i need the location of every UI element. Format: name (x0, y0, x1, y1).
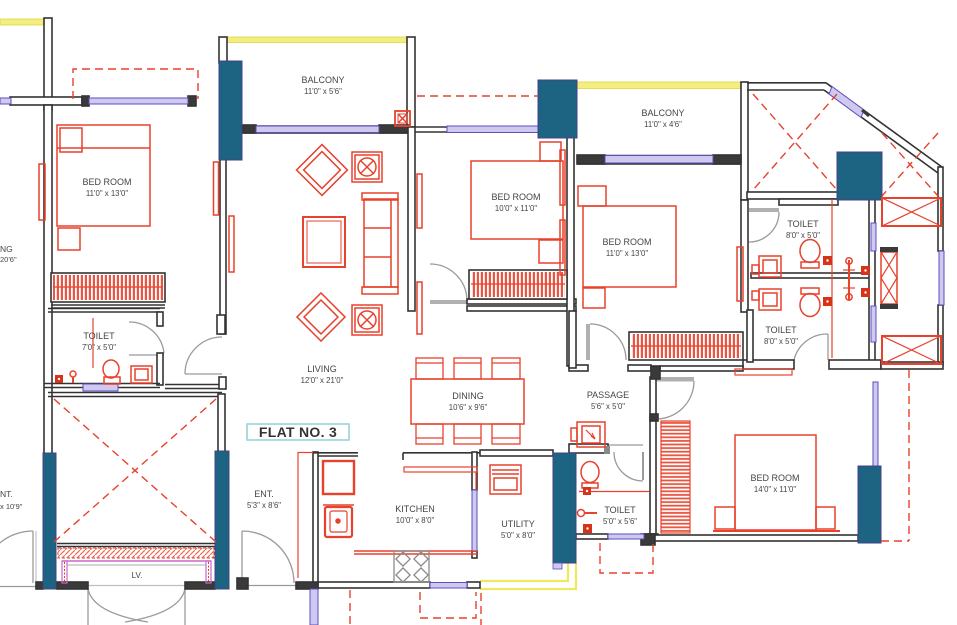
svg-text:BED ROOM: BED ROOM (750, 473, 799, 483)
svg-text:LIVING: LIVING (307, 364, 337, 374)
svg-text:UTILITY: UTILITY (501, 519, 535, 529)
svg-text:NT.: NT. (0, 489, 13, 499)
svg-text:12'0" x 21'0": 12'0" x 21'0" (301, 376, 344, 385)
svg-text:TOILET: TOILET (765, 325, 797, 335)
svg-text:10'0" x 8'0": 10'0" x 8'0" (396, 516, 435, 525)
svg-text:5'3" x 8'6": 5'3" x 8'6" (247, 501, 281, 510)
svg-text:5'6" x 5'0": 5'6" x 5'0" (591, 402, 625, 411)
svg-text:5'0" x 8'0": 5'0" x 8'0" (501, 531, 535, 540)
svg-text:KITCHEN: KITCHEN (395, 504, 435, 514)
svg-text:TOILET: TOILET (787, 219, 819, 229)
svg-text:10'6" x 9'6": 10'6" x 9'6" (449, 403, 488, 412)
svg-text:7'0" x 5'0": 7'0" x 5'0" (82, 343, 116, 352)
svg-text:11'0" x 13'0": 11'0" x 13'0" (86, 189, 128, 198)
svg-text:BED ROOM: BED ROOM (491, 192, 540, 202)
svg-text:NG: NG (0, 244, 13, 254)
svg-text:BALCONY: BALCONY (301, 75, 344, 85)
svg-text:5'0" x 5'6": 5'0" x 5'6" (603, 517, 637, 526)
svg-text:14'0" x 11'0": 14'0" x 11'0" (754, 485, 796, 494)
svg-text:DINING: DINING (452, 391, 484, 401)
svg-text:PASSAGE: PASSAGE (587, 390, 629, 400)
svg-text:ENT.: ENT. (254, 489, 274, 499)
svg-text:x 10'9": x 10'9" (0, 502, 23, 511)
svg-text:20'6": 20'6" (0, 255, 17, 264)
svg-text:10'0" x 11'0": 10'0" x 11'0" (495, 204, 537, 213)
svg-text:BED ROOM: BED ROOM (602, 237, 651, 247)
svg-text:BED ROOM: BED ROOM (82, 177, 131, 187)
svg-text:11'0" x 13'0": 11'0" x 13'0" (606, 249, 648, 258)
svg-text:TOILET: TOILET (604, 505, 636, 515)
svg-text:11'0" x 4'6": 11'0" x 4'6" (644, 120, 682, 129)
svg-text:11'0" x 5'6": 11'0" x 5'6" (304, 87, 342, 96)
svg-text:8'0" x 5'0": 8'0" x 5'0" (764, 337, 798, 346)
svg-text:LV.: LV. (132, 571, 143, 580)
svg-text:BALCONY: BALCONY (641, 108, 684, 118)
svg-text:8'0" x 5'0": 8'0" x 5'0" (786, 231, 820, 240)
svg-text:FLAT NO. 3: FLAT NO. 3 (259, 424, 337, 440)
svg-text:TOILET: TOILET (83, 331, 115, 341)
